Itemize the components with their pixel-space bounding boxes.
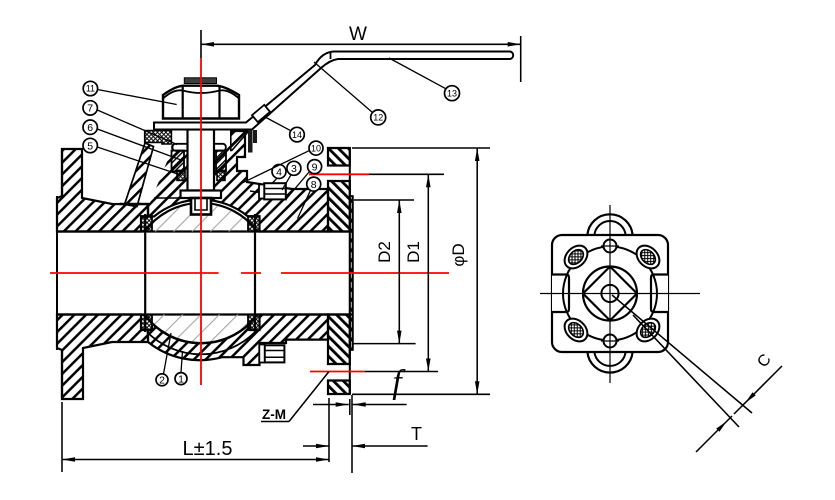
svg-text:D2: D2 (375, 241, 394, 263)
svg-text:14: 14 (292, 130, 302, 140)
svg-text:11: 11 (86, 84, 95, 94)
svg-text:5: 5 (87, 140, 93, 152)
svg-text:L±1.5: L±1.5 (183, 438, 233, 460)
svg-text:7: 7 (87, 103, 93, 115)
svg-text:3: 3 (291, 163, 297, 175)
svg-text:2: 2 (159, 375, 165, 387)
svg-text:9: 9 (312, 161, 318, 173)
svg-text:13: 13 (447, 88, 457, 98)
svg-text:1: 1 (178, 373, 184, 385)
svg-text:12: 12 (373, 113, 383, 123)
svg-text:φD: φD (449, 243, 468, 266)
svg-text:10: 10 (311, 143, 321, 153)
svg-text:Z-M: Z-M (262, 407, 286, 422)
svg-text:6: 6 (87, 122, 93, 134)
svg-text:W: W (349, 24, 367, 45)
svg-text:4: 4 (276, 166, 282, 178)
svg-text:8: 8 (311, 179, 317, 191)
svg-text:T: T (411, 424, 422, 444)
svg-text:D1: D1 (404, 241, 423, 263)
